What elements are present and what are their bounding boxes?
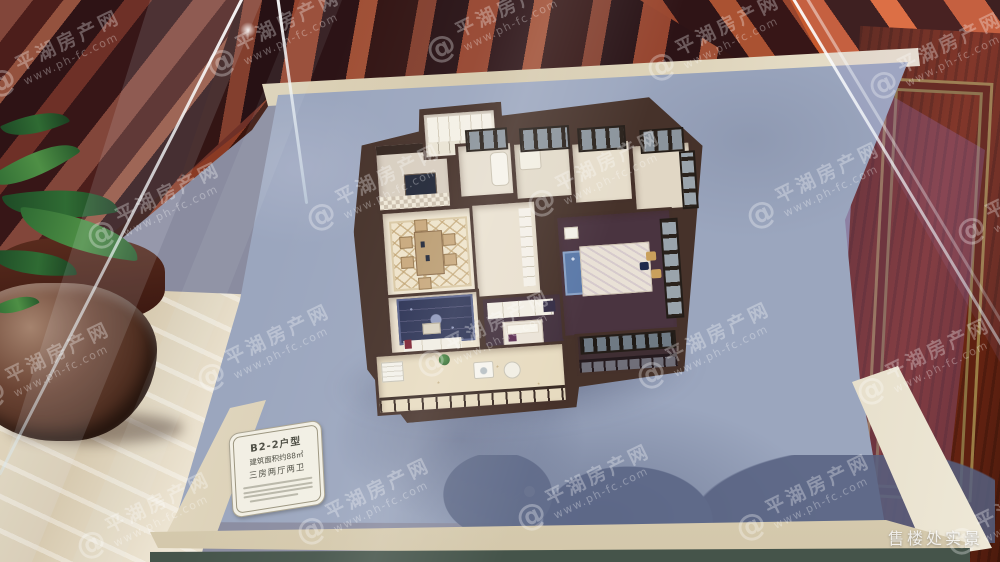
showroom-photo: B2-2户型 建筑面积约88㎡ 三房两厅两卫 @平湖房产网www.ph-fc.c… <box>0 0 1000 562</box>
glass-glint <box>240 22 256 38</box>
photo-caption: 售楼处实景 <box>888 525 983 549</box>
glass-sheen <box>0 0 1000 562</box>
